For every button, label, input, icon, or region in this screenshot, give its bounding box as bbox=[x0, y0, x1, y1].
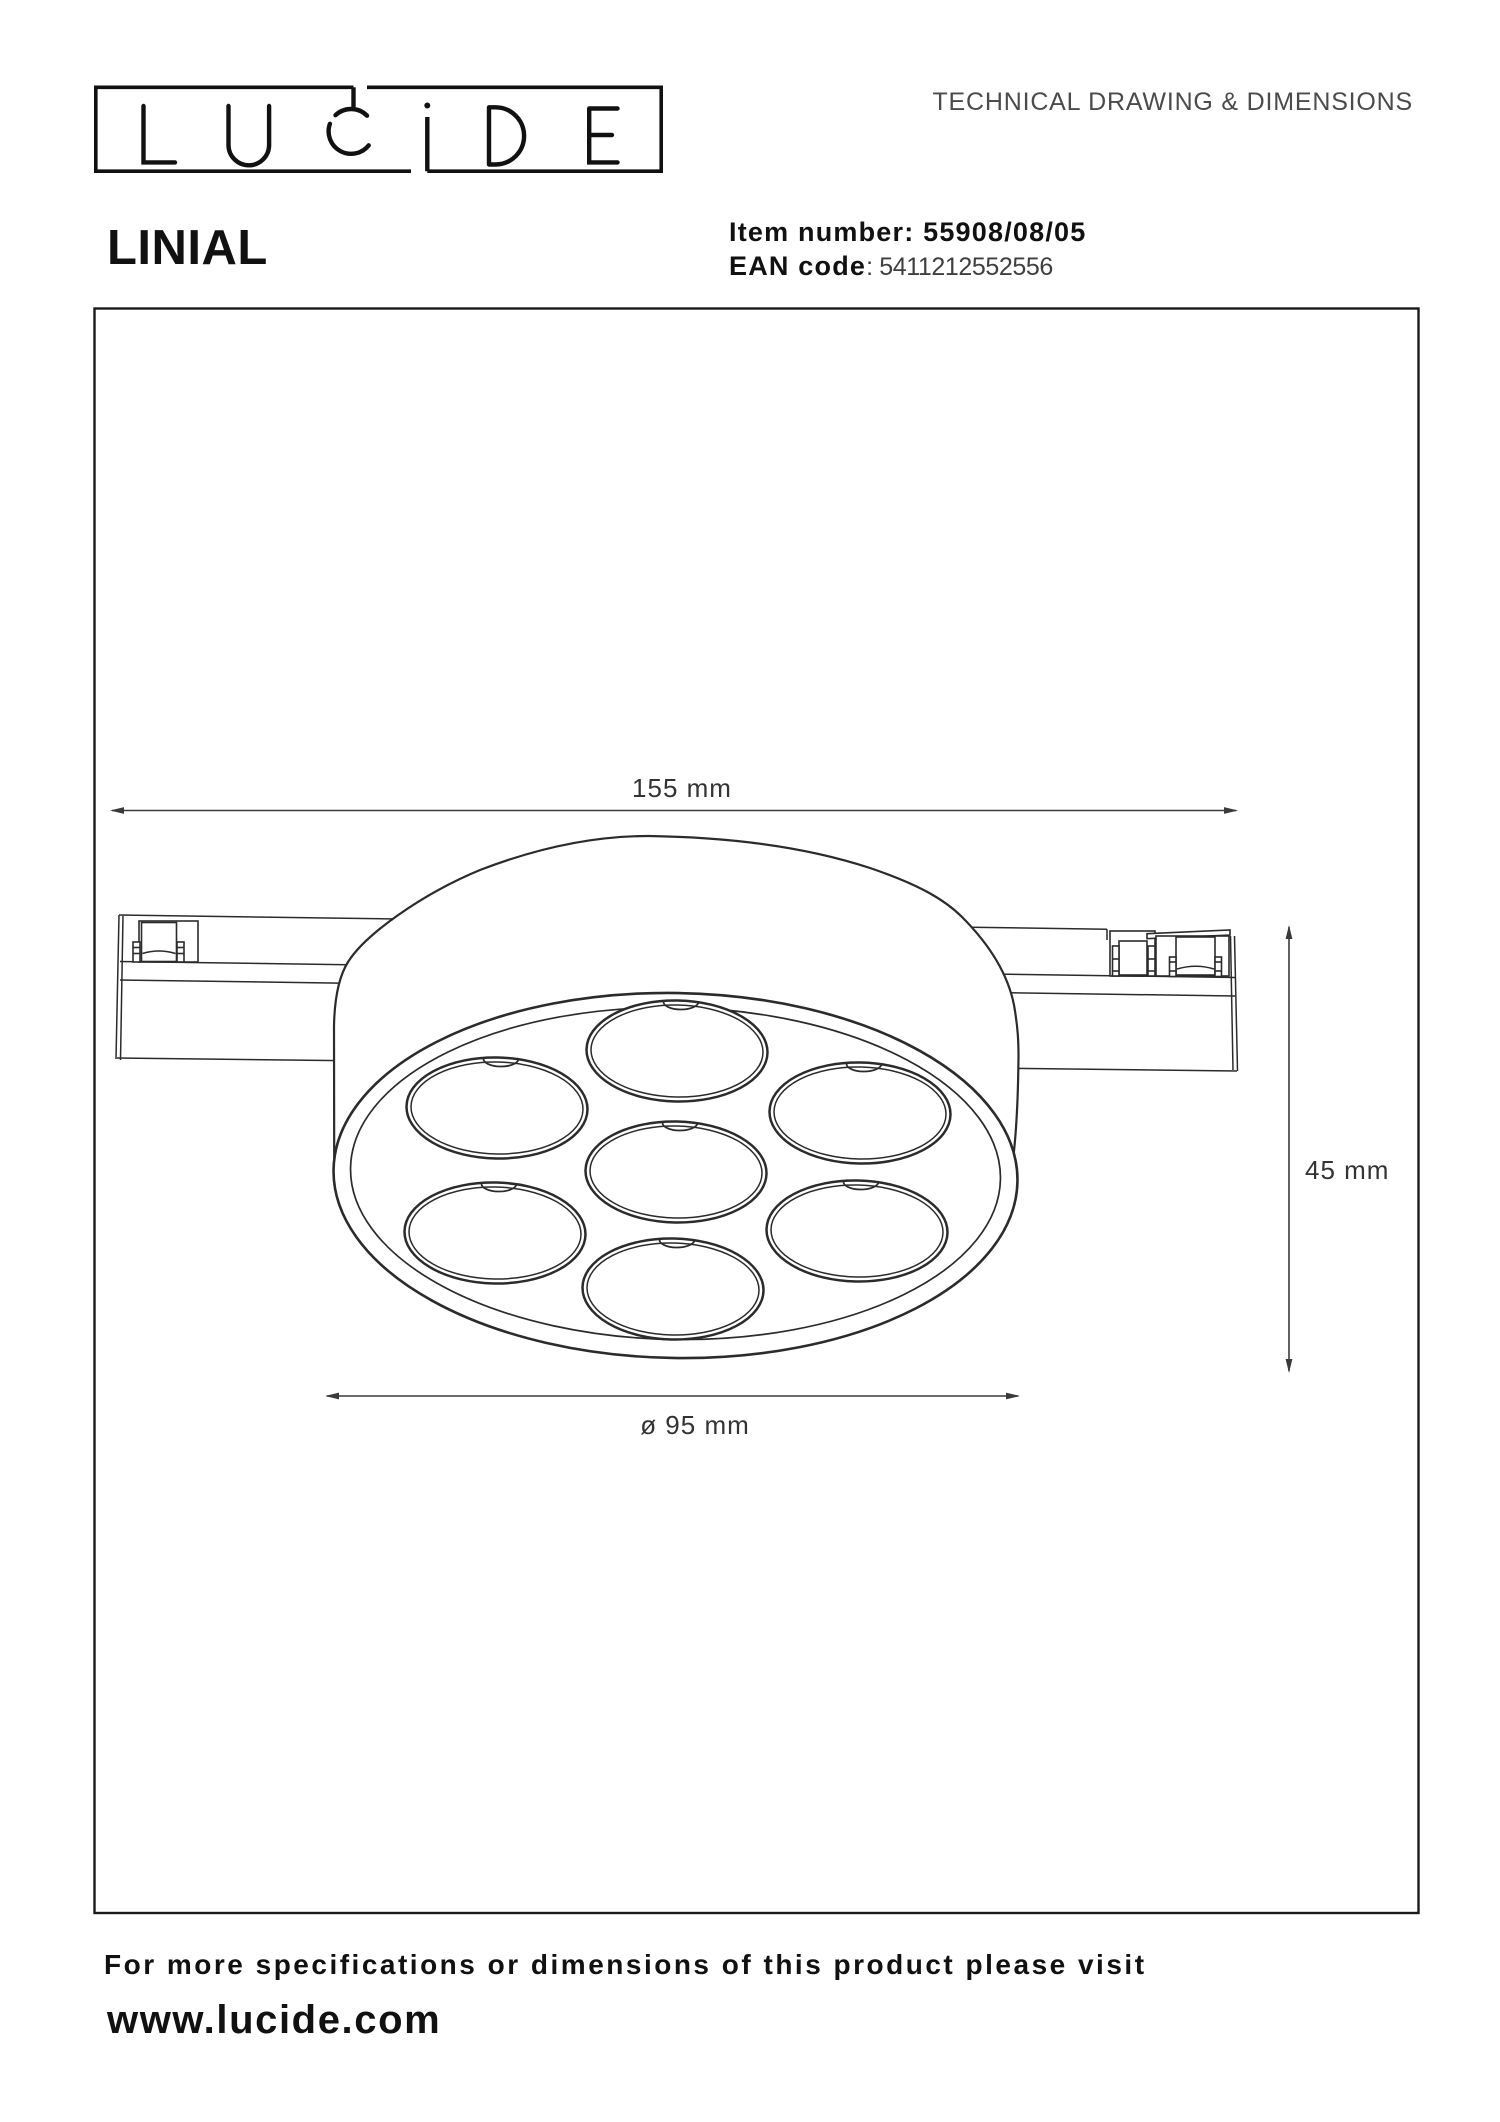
svg-text:ø 95 mm: ø 95 mm bbox=[640, 1410, 750, 1440]
svg-text:EAN code: 5411212552556: EAN code: 5411212552556 bbox=[729, 251, 1053, 281]
svg-text:45 mm: 45 mm bbox=[1305, 1155, 1389, 1185]
svg-text:155 mm: 155 mm bbox=[632, 773, 732, 803]
svg-text:TECHNICAL DRAWING & DIMENSIONS: TECHNICAL DRAWING & DIMENSIONS bbox=[932, 88, 1413, 116]
svg-text:LINIAL: LINIAL bbox=[107, 221, 268, 275]
svg-text:www.lucide.com: www.lucide.com bbox=[106, 1998, 441, 2042]
svg-text:For more specifications or dim: For more specifications or dimensions of… bbox=[104, 1949, 1147, 1980]
svg-text:Item number: 55908/08/05: Item number: 55908/08/05 bbox=[729, 217, 1086, 247]
